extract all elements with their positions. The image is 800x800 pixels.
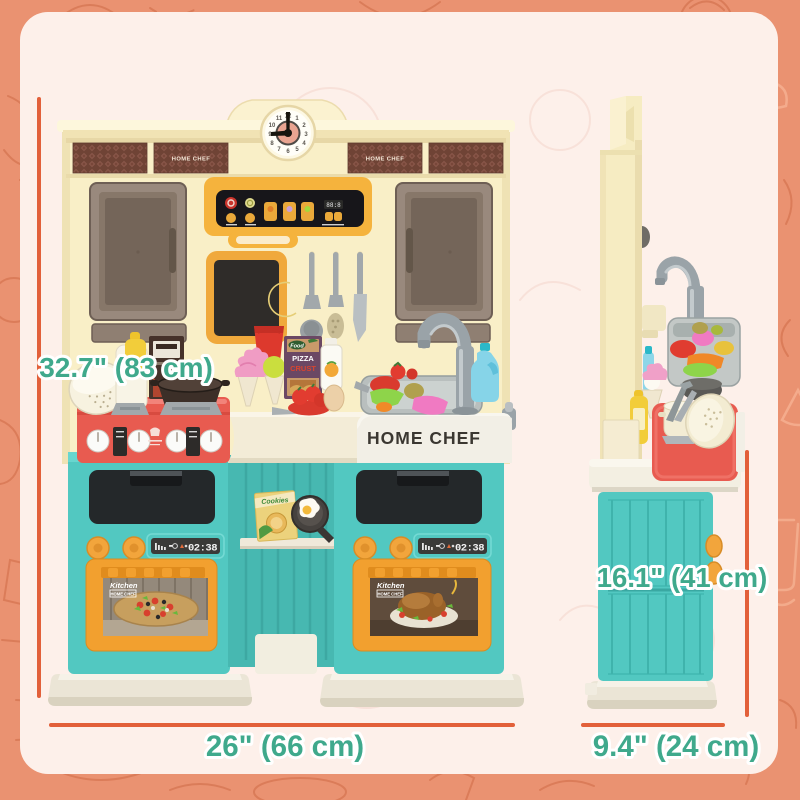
svg-text:HOME CHEF: HOME CHEF bbox=[377, 592, 403, 597]
svg-text:HOME CHEF: HOME CHEF bbox=[366, 157, 404, 163]
svg-text:Food: Food bbox=[290, 344, 304, 350]
svg-text:32.7" (83 cm): 32.7" (83 cm) bbox=[39, 352, 213, 383]
svg-text:HOME CHEF: HOME CHEF bbox=[110, 592, 136, 597]
svg-text:CRUST: CRUST bbox=[290, 364, 316, 373]
svg-text:02:38: 02:38 bbox=[188, 543, 217, 555]
svg-text:Kitchen: Kitchen bbox=[110, 581, 138, 590]
svg-text:PIZZA: PIZZA bbox=[292, 354, 314, 363]
svg-text:11: 11 bbox=[276, 116, 283, 122]
svg-text:16.1" (41 cm): 16.1" (41 cm) bbox=[597, 562, 768, 593]
svg-text:HOME CHEF: HOME CHEF bbox=[172, 157, 210, 163]
svg-text:9.4" (24 cm): 9.4" (24 cm) bbox=[593, 730, 760, 763]
svg-text:02:38: 02:38 bbox=[455, 543, 484, 555]
svg-text:88:8: 88:8 bbox=[326, 202, 341, 209]
svg-text:Kitchen: Kitchen bbox=[377, 581, 405, 590]
svg-text:10: 10 bbox=[269, 123, 276, 129]
svg-text:26" (66 cm): 26" (66 cm) bbox=[206, 730, 364, 763]
svg-text:HOME CHEF: HOME CHEF bbox=[367, 428, 481, 448]
